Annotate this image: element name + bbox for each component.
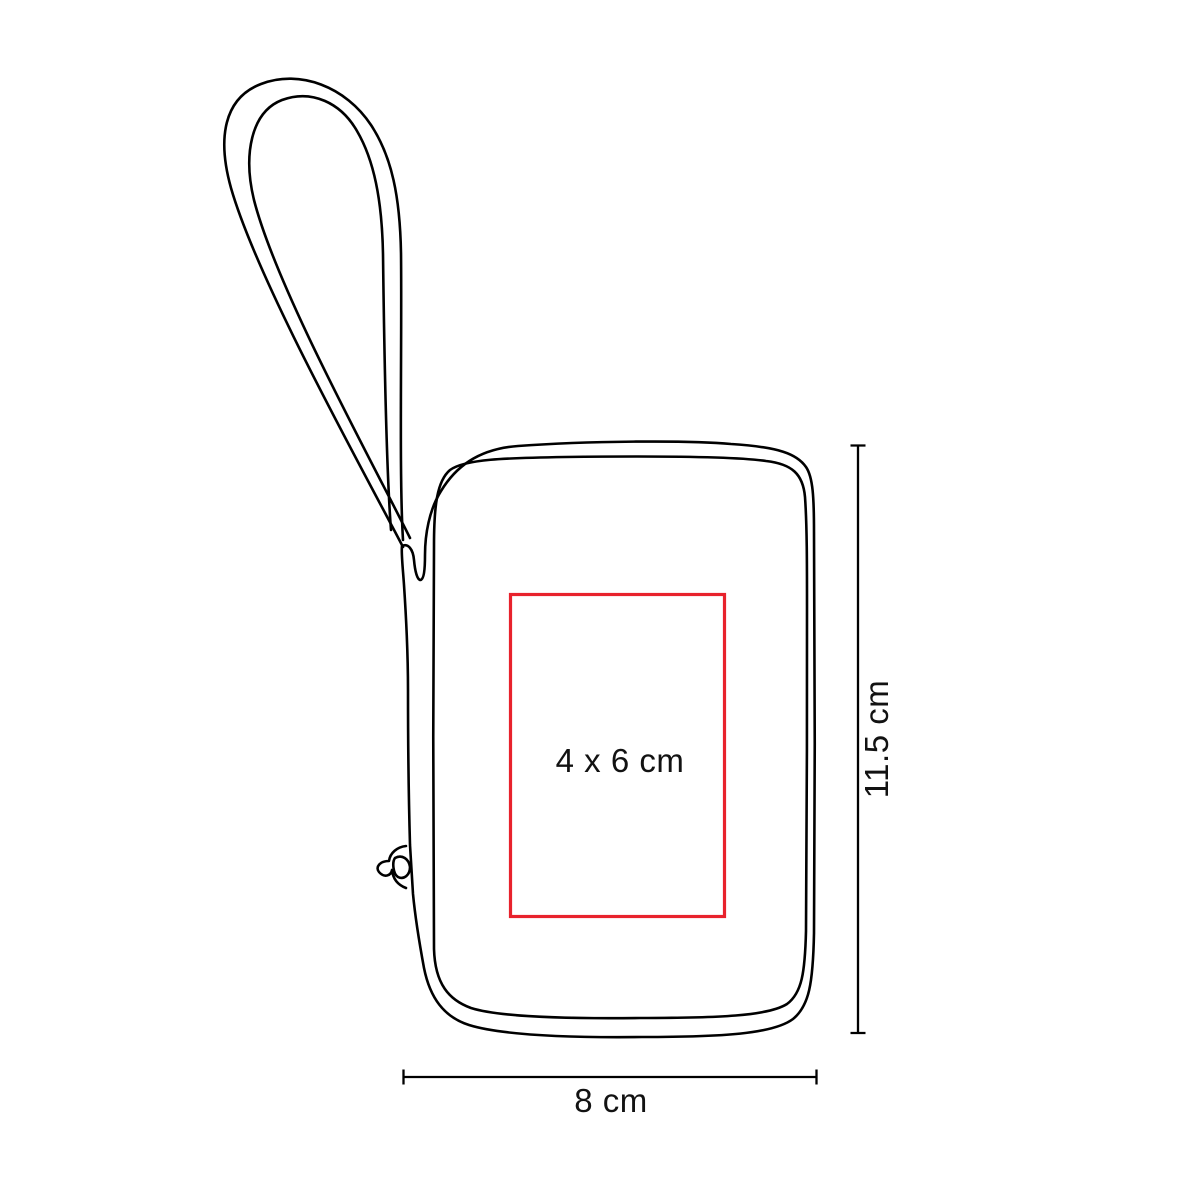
width-dimension-label: 8 cm [574,1082,648,1119]
print-area-label: 4 x 6 cm [556,742,685,779]
height-dimension-label: 11.5 cm [858,680,895,798]
pouch-outer-outline [402,442,815,1038]
zipper-pull-icon [378,846,410,888]
product-dimension-diagram: 4 x 6 cm 11.5 cm 8 cm [0,0,1200,1200]
pouch-body-panel [433,456,807,1018]
pouch-with-wrist-strap-outline-icon [224,79,814,1037]
diagram-canvas: 4 x 6 cm 11.5 cm 8 cm [0,0,1200,1200]
wrist-strap-inner-edge [249,96,410,538]
